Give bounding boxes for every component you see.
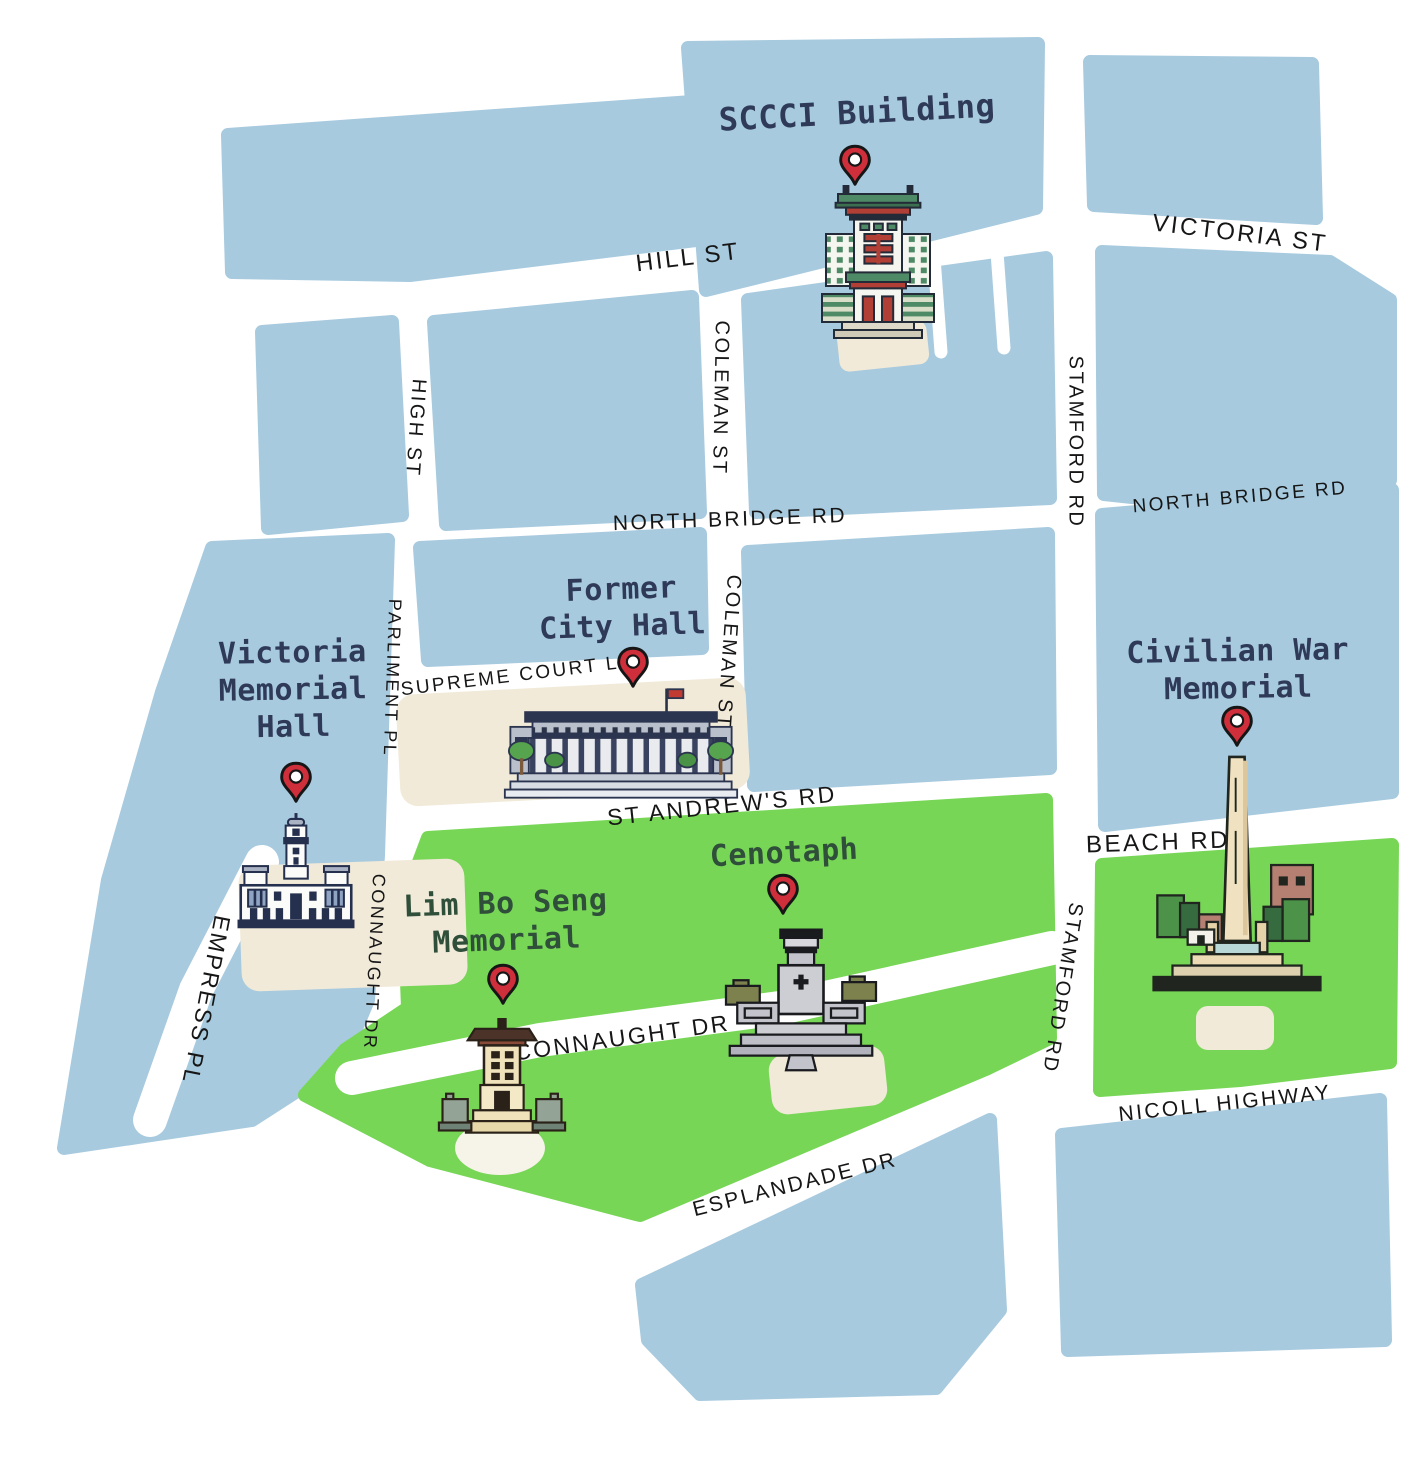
block-victoria-north [1090,62,1316,218]
poi-label-cwm-line2: Memorial [1127,668,1350,709]
poi-label-vmh-line2: Memorial [218,670,367,710]
poi-label-cwm-line1: Civilian War [1126,631,1349,672]
poi-label-former-city-hall-line2: City Hall [539,605,707,648]
illustration-victoria-memorial-hall[interactable] [226,812,366,960]
map-pin-victoria-memorial-hall[interactable] [277,760,315,806]
map-pin-lim-bo-seng[interactable] [484,962,522,1008]
road-label-stamford-rd-1: STAMFORD RD [1064,356,1087,529]
map-pin-cenotaph[interactable] [764,872,802,918]
poi-label-cenotaph: Cenotaph [709,831,859,876]
poi-label-lim-bo-seng: Lim Bo Seng Memorial [403,881,610,962]
illustration-civilian-war-memorial[interactable] [1142,755,1332,1013]
poi-label-cenotaph-line1: Cenotaph [709,832,859,875]
poi-label-former-city-hall: Former City Hall [537,568,707,648]
illustration-former-city-hall[interactable] [503,686,739,812]
illustration-sccci-building[interactable] [810,182,946,358]
map-pin-sccci[interactable] [836,143,874,189]
illustration-cenotaph[interactable] [722,924,880,1074]
illustration-lim-bo-seng-memorial[interactable] [437,1018,567,1155]
block-victoria-south [1102,252,1390,500]
poi-label-lbs-line2: Memorial [404,918,609,962]
poi-label-vmh-line1: Victoria [218,633,367,673]
block-high-coleman [434,297,700,524]
poi-label-former-city-hall-line1: Former [537,568,705,611]
block-high-st-west [262,322,402,528]
road-label-coleman-st-1: COLEMAN ST [707,320,733,475]
map-pin-civilian-war-memorial[interactable] [1218,704,1256,750]
block-north-bridge-south [748,534,1050,785]
poi-label-victoria-memorial-hall: Victoria Memorial Hall [218,633,368,747]
poi-label-vmh-line3: Hall [219,707,368,747]
block-hill-st-west [228,102,696,275]
map-pin-former-city-hall[interactable] [614,645,652,691]
poi-label-civilian-war-memorial: Civilian War Memorial [1126,631,1350,709]
block-bottom-right [1062,1100,1385,1350]
civic-district-map: HILL ST VICTORIA ST COLEMAN ST COLEMAN S… [0,0,1414,1461]
road-sliver-2 [997,252,1004,348]
